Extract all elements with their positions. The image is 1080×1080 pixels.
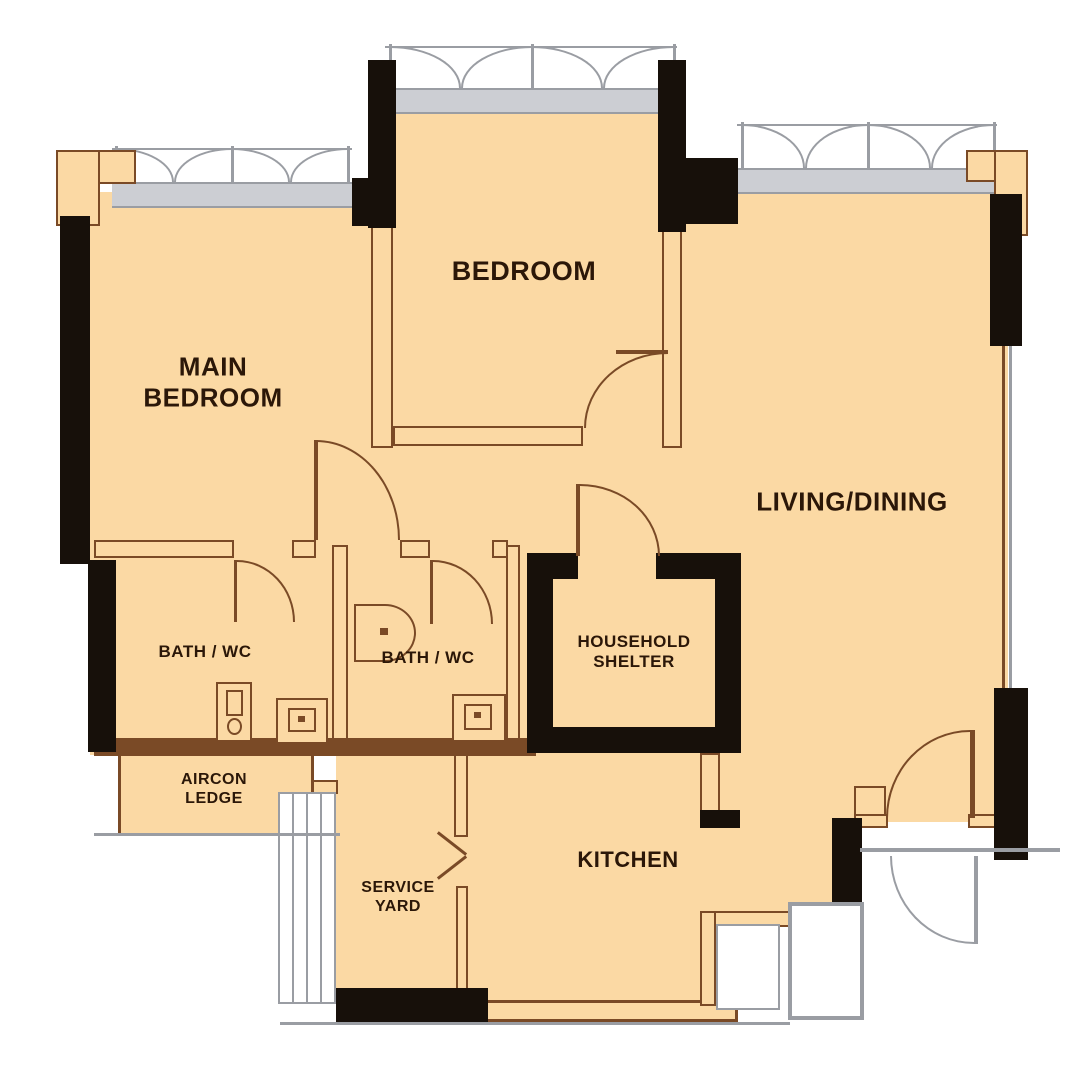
wall-shelter-left [527, 553, 553, 753]
wall-bedroom-left-lower [371, 226, 393, 448]
door-leaf-entrance [970, 730, 975, 818]
aircon-ledge-label: AIRCON LEDGE [181, 771, 247, 809]
window-post [231, 146, 234, 184]
wall-kitchen-bottom [460, 1000, 738, 1022]
window-swing-icon [805, 124, 868, 168]
sink-drain-icon [298, 716, 305, 722]
wall-bath2-shelter-divider [506, 545, 520, 745]
window-swing-icon [174, 148, 232, 182]
wall-bath2-top [400, 540, 430, 558]
wall-shelter-bottom [527, 727, 741, 753]
wall-bath-left [88, 560, 116, 752]
floor-plan: MAIN BEDROOM BEDROOM LIVING/DINING BATH … [0, 0, 1080, 1080]
window-post [347, 146, 350, 184]
window-post [531, 44, 534, 90]
toilet-icon [227, 718, 242, 735]
toilet-drain-icon [474, 712, 481, 718]
wall-bath-divider [332, 545, 348, 745]
bath1-label: BATH / WC [159, 642, 252, 662]
window-swing-icon [461, 46, 532, 88]
serviceyard-railing-bar [306, 794, 308, 1002]
wall-main-bedroom-left [60, 216, 90, 564]
window-swing-icon [390, 46, 461, 88]
window-band-bedroom [385, 88, 677, 114]
window-swing-icon [742, 124, 805, 168]
kitchen-label: KITCHEN [577, 847, 678, 873]
window-post [741, 122, 744, 170]
window-swing-icon [290, 148, 348, 182]
window-swing-icon [232, 148, 290, 182]
wall-living-right-top [990, 194, 1022, 346]
gate-swing-entrance [890, 856, 974, 944]
wall-serviceyard-kitchen [454, 745, 468, 837]
wall-shelter-right [715, 553, 741, 753]
household-shelter-label: HOUSEHOLD SHELTER [577, 632, 690, 672]
kitchen-floor [460, 745, 714, 1005]
service-yard-label: SERVICE YARD [361, 879, 434, 917]
bath2-label: BATH / WC [382, 648, 475, 668]
wall-living-right-bottom [994, 688, 1028, 860]
corridor-edge-line [860, 848, 1060, 852]
main-bedroom-label: MAIN BEDROOM [143, 351, 282, 412]
serviceyard-railing-bar [292, 794, 294, 1002]
wall-kitchen-notch [700, 911, 716, 1006]
ledge-edge-line [94, 833, 340, 836]
wall-bedroom-bottom [393, 426, 583, 446]
wall-shelter-stub [700, 753, 720, 813]
wall-bedroom-left-top [368, 60, 396, 228]
wall-bath1-top [292, 540, 316, 558]
sink-drain-icon [380, 628, 388, 635]
wall-bath1-top [94, 540, 234, 558]
wall-bedroom-right-top [658, 60, 686, 232]
corridor-edge-line [280, 1022, 790, 1025]
shaft-box [716, 924, 780, 1010]
wall-stub-cap [700, 810, 740, 828]
wall-living-right-thin [1002, 344, 1005, 690]
wall-living-topleft-post [686, 158, 738, 224]
living-dining-label: LIVING/DINING [756, 487, 947, 518]
window-swing-icon [532, 46, 603, 88]
window-post [867, 122, 870, 170]
wall-serviceyard-bottom [336, 988, 488, 1022]
window-band-living [737, 168, 997, 194]
bedroom-label: BEDROOM [452, 256, 597, 288]
wall-living-right-thin [1009, 344, 1012, 690]
lift-shaft-box [788, 902, 864, 1020]
window-swing-icon [868, 124, 931, 168]
gate-leaf-entrance [974, 856, 978, 944]
kitchen-floor-right [714, 745, 834, 915]
serviceyard-railing-bar [320, 794, 322, 1002]
wall-corner-topleft [56, 150, 100, 226]
window-band-main-bedroom [112, 182, 352, 208]
toilet-icon [226, 690, 243, 716]
